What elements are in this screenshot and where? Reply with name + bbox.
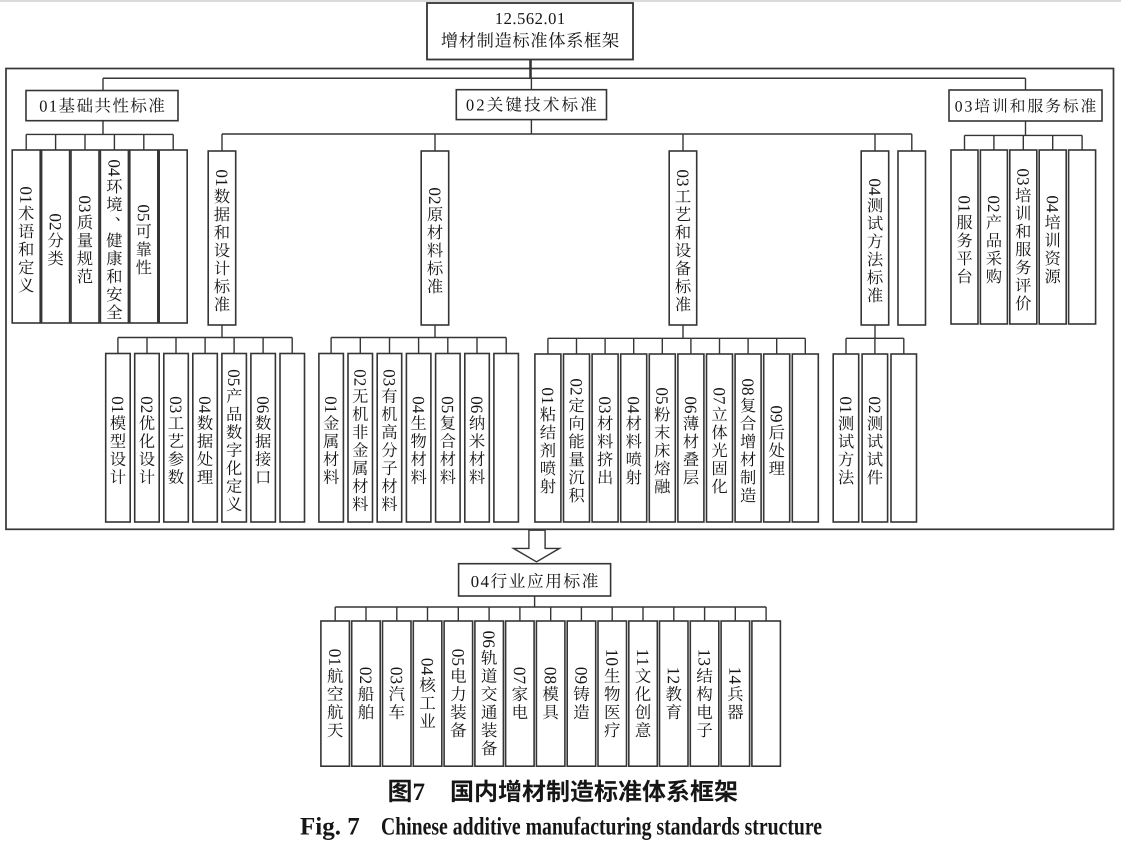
svg-text:Fig. 7: Fig. 7	[300, 814, 360, 841]
svg-text:Chinese additive manufacturing: Chinese additive manufacturing standards…	[381, 814, 822, 841]
